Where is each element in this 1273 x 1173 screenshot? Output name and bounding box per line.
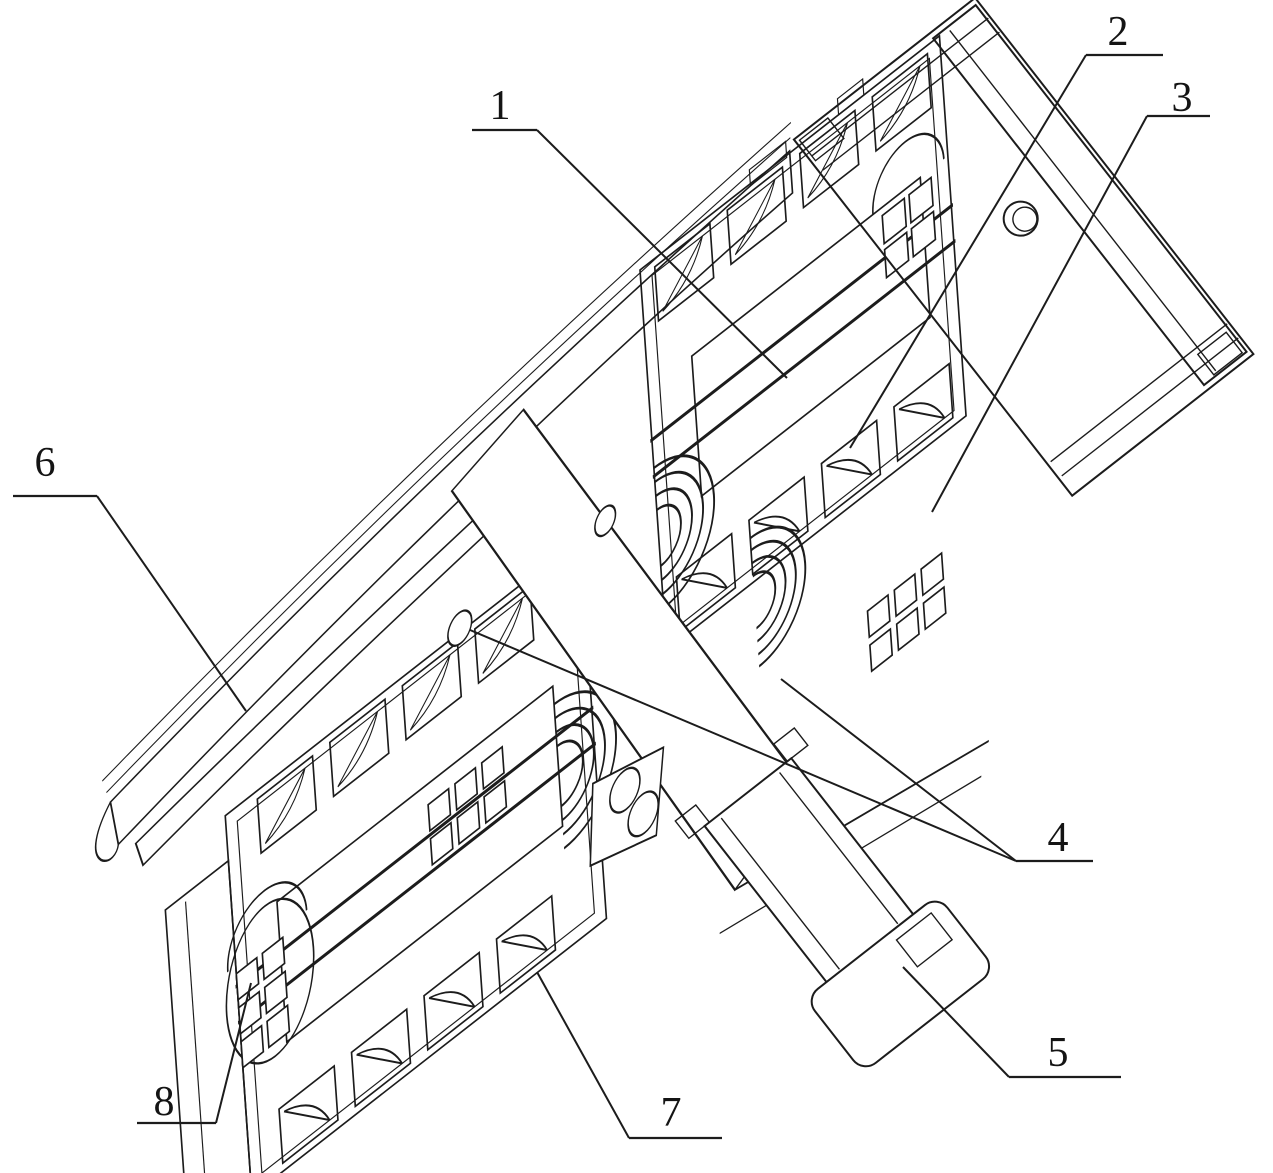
- spring-arc: [556, 705, 597, 820]
- band-left-tip: [93, 798, 119, 869]
- roller-square: [455, 768, 477, 810]
- stator-slot: [655, 224, 714, 321]
- stator-slot: [475, 586, 534, 683]
- module-a-tab: [837, 79, 863, 115]
- spring-arc: [656, 470, 695, 580]
- end-housing-rail: [823, 32, 1000, 170]
- winding-wedge: [682, 546, 727, 621]
- winding-wedge: [899, 376, 944, 451]
- winding-wedge: [827, 433, 872, 508]
- roller-square: [923, 587, 945, 629]
- end-housing-rail: [1051, 324, 1228, 462]
- roller-square: [870, 629, 892, 671]
- figure-page: 12345678: [0, 0, 1273, 1173]
- end-housing-rail: [1062, 338, 1239, 476]
- winding-wedge: [262, 768, 307, 843]
- roller-square: [482, 747, 504, 789]
- roller-square: [428, 789, 450, 831]
- roller-square: [868, 595, 890, 637]
- stator-slot: [352, 1009, 411, 1106]
- bolt-hole-inner: [1008, 202, 1042, 236]
- bearing-ball: [447, 604, 473, 652]
- roller-square: [897, 608, 919, 650]
- callout-7: 7: [537, 972, 722, 1138]
- module-a-frame: [640, 36, 966, 650]
- end-plate: [933, 5, 1246, 385]
- module-b-frame-inner: [237, 561, 594, 1173]
- stator-slot: [821, 420, 880, 517]
- callout-8: 8: [137, 983, 251, 1125]
- winding-wedge: [502, 908, 547, 983]
- stator-slot: [727, 167, 786, 264]
- winding-wedge: [357, 1021, 402, 1096]
- stator-slot: [279, 1066, 338, 1163]
- stator-slot: [330, 699, 389, 796]
- leader-line: [97, 496, 246, 711]
- roller-square: [239, 992, 261, 1034]
- patent-figure: 12345678: [0, 0, 1273, 1173]
- callout-number: 3: [1172, 75, 1193, 121]
- callout-number: 6: [35, 440, 56, 486]
- roller-square: [894, 574, 916, 616]
- module-b-frame: [225, 539, 606, 1173]
- winding-wedge: [335, 711, 380, 786]
- roller-square: [921, 553, 943, 595]
- leader-line: [537, 972, 629, 1138]
- winding-wedge: [805, 123, 850, 198]
- winding-wedge: [429, 965, 474, 1040]
- module-b-shaft: [236, 707, 594, 987]
- stator-slot: [894, 364, 953, 461]
- callout-number: 4: [1048, 815, 1069, 861]
- end-housing-rail: [812, 18, 989, 156]
- stator-slot: [497, 896, 556, 993]
- callout-number: 8: [154, 1079, 175, 1125]
- callout-number: 1: [490, 83, 511, 129]
- stator-slot: [402, 643, 461, 740]
- callout-1: 1: [472, 83, 787, 378]
- winding-wedge: [284, 1078, 329, 1153]
- left-end-cap-line: [186, 902, 209, 1173]
- module-b-rotor: [277, 686, 563, 1042]
- winding-wedge: [732, 179, 777, 254]
- winding-wedge: [877, 66, 922, 141]
- winding-wedge: [407, 655, 452, 730]
- winding-wedge: [480, 598, 525, 673]
- stator-slot: [424, 953, 483, 1050]
- leader-line: [537, 130, 787, 378]
- callout-number: 5: [1048, 1030, 1069, 1076]
- callout-number: 7: [661, 1090, 682, 1136]
- roller-square: [241, 1026, 263, 1068]
- stator-slot: [257, 756, 316, 853]
- callout-number: 2: [1108, 9, 1129, 55]
